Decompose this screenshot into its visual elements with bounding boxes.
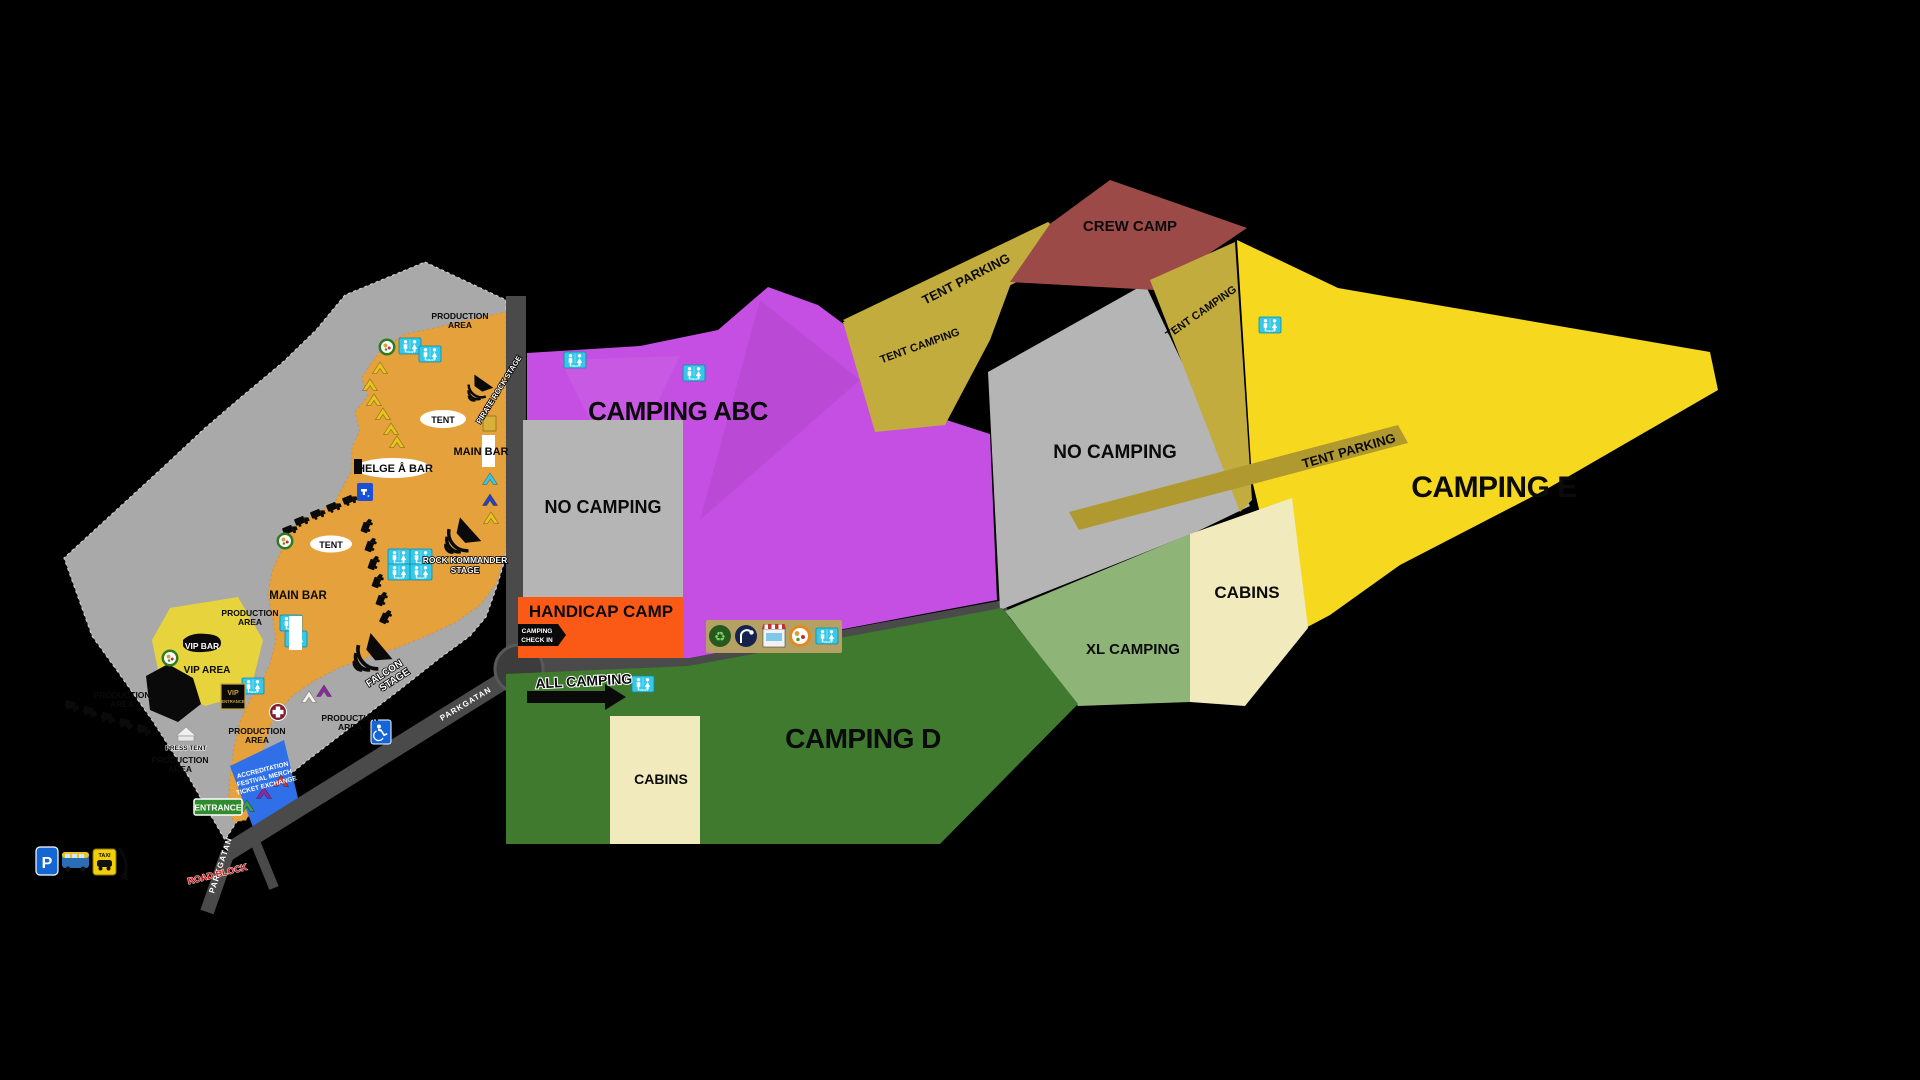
main-bar-west-label: MAIN BAR xyxy=(269,590,327,602)
vip-entrance-sign: VIP ENTRANCE xyxy=(221,684,245,709)
main-bar-counter-west xyxy=(289,616,302,650)
toilet-icon xyxy=(419,346,441,362)
svg-text:CAMPING: CAMPING xyxy=(522,628,553,635)
food-icon xyxy=(162,650,179,667)
svg-text:♻: ♻ xyxy=(714,629,726,644)
tent-structure-south: TENT xyxy=(310,536,352,553)
cabins-east-label: CABINS xyxy=(1214,583,1279,602)
cabins-west-label: CABINS xyxy=(634,771,688,787)
no-camping-west-label: NO CAMPING xyxy=(545,497,662,517)
festival-map-screenshot: TOILET xyxy=(0,0,1920,1080)
svg-text:ENTRANCE: ENTRANCE xyxy=(194,803,242,813)
kiosk-icon xyxy=(762,624,786,647)
festival-map: TOILET xyxy=(0,0,1920,1080)
toilet-icon xyxy=(1259,317,1281,333)
svg-text:PRESS TENT: PRESS TENT xyxy=(166,745,207,752)
svg-text:TENT: TENT xyxy=(431,415,455,425)
entrance-sign: ENTRANCE xyxy=(194,799,242,815)
svg-text:VIP BAR: VIP BAR xyxy=(185,641,219,651)
first-aid-icon xyxy=(270,704,287,721)
vip-bar: VIP BAR xyxy=(183,634,221,653)
services-icon-strip: ♻ xyxy=(706,620,842,653)
crew-camp-label: CREW CAMP xyxy=(1083,218,1177,235)
toilet-icon xyxy=(388,549,410,565)
xl-camping-label: XL CAMPING xyxy=(1086,641,1180,658)
camping-abc-label: CAMPING ABC xyxy=(588,396,769,426)
camping-check-in-sign: CAMPING CHECK IN xyxy=(518,624,566,646)
toilet-icon xyxy=(683,365,705,381)
handicap-camp-label: HANDICAP CAMP xyxy=(529,602,673,621)
shower-icon xyxy=(735,625,757,647)
camping-e-label: CAMPING E xyxy=(1411,471,1577,504)
food-icon xyxy=(379,339,396,356)
food-court-icon xyxy=(789,625,811,647)
svg-text:P: P xyxy=(42,855,53,872)
svg-text:ROCK KOMMANDER: ROCK KOMMANDER xyxy=(423,555,508,565)
tent-structure-north: TENT xyxy=(420,410,466,428)
main-bar-east-label: MAIN BAR xyxy=(454,446,509,458)
toilet-icon xyxy=(399,338,421,354)
handicap-parking-sign xyxy=(371,720,391,744)
recycle-icon: ♻ xyxy=(709,625,731,647)
toilet-icon xyxy=(816,628,838,644)
svg-text:VIP: VIP xyxy=(227,690,239,697)
no-camping-east-label: NO CAMPING xyxy=(1053,442,1177,463)
svg-text:TAXI: TAXI xyxy=(98,853,111,859)
toilet-icon xyxy=(388,564,410,580)
vip-area-label: VIP AREA xyxy=(184,665,231,676)
camping-d-label: CAMPING D xyxy=(785,723,941,754)
svg-text:HELGE Å BAR: HELGE Å BAR xyxy=(357,462,433,475)
food-icon xyxy=(277,533,294,550)
taxi-sign: TAXI xyxy=(93,849,116,875)
parking-sign: P xyxy=(36,847,58,875)
svg-text:STAGE: STAGE xyxy=(451,565,480,575)
svg-text:ENTRANCE: ENTRANCE xyxy=(221,699,244,704)
svg-text:TENT: TENT xyxy=(319,540,343,550)
toilet-icon xyxy=(632,676,654,692)
toilet-icon xyxy=(564,352,586,368)
water-tap-icon xyxy=(357,483,373,501)
toilet-icon xyxy=(410,564,432,580)
svg-text:CHECK IN: CHECK IN xyxy=(521,637,553,644)
